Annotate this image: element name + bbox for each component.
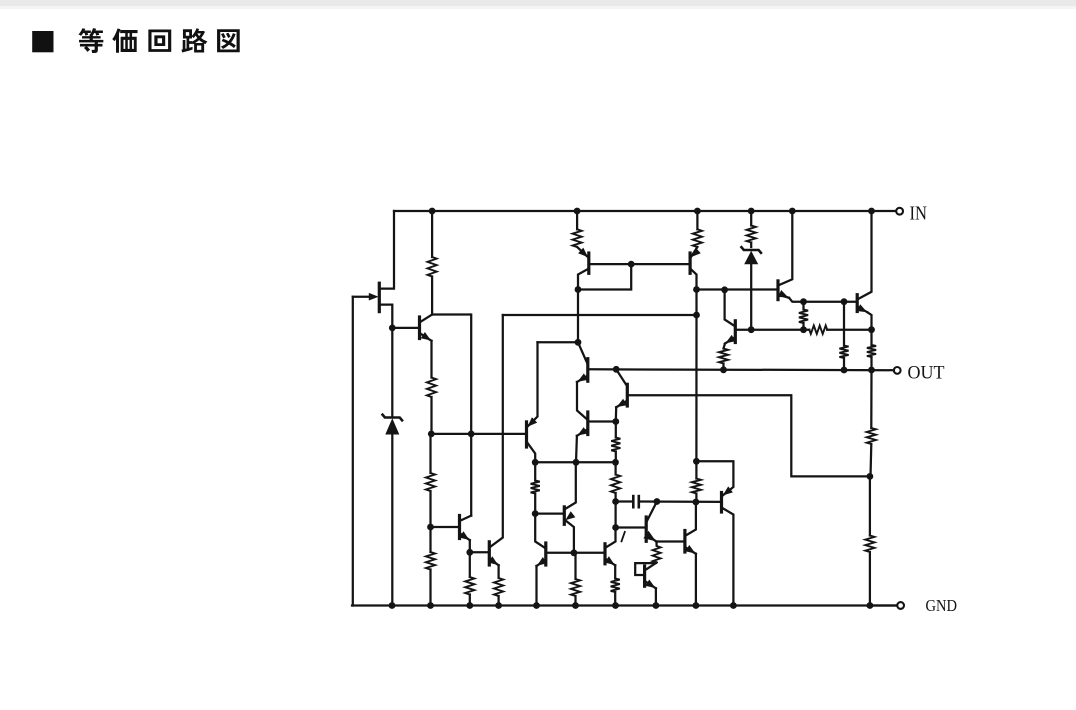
svg-text:OUT: OUT: [908, 363, 945, 384]
svg-text:GND: GND: [926, 596, 958, 615]
svg-text:IN: IN: [910, 203, 928, 225]
